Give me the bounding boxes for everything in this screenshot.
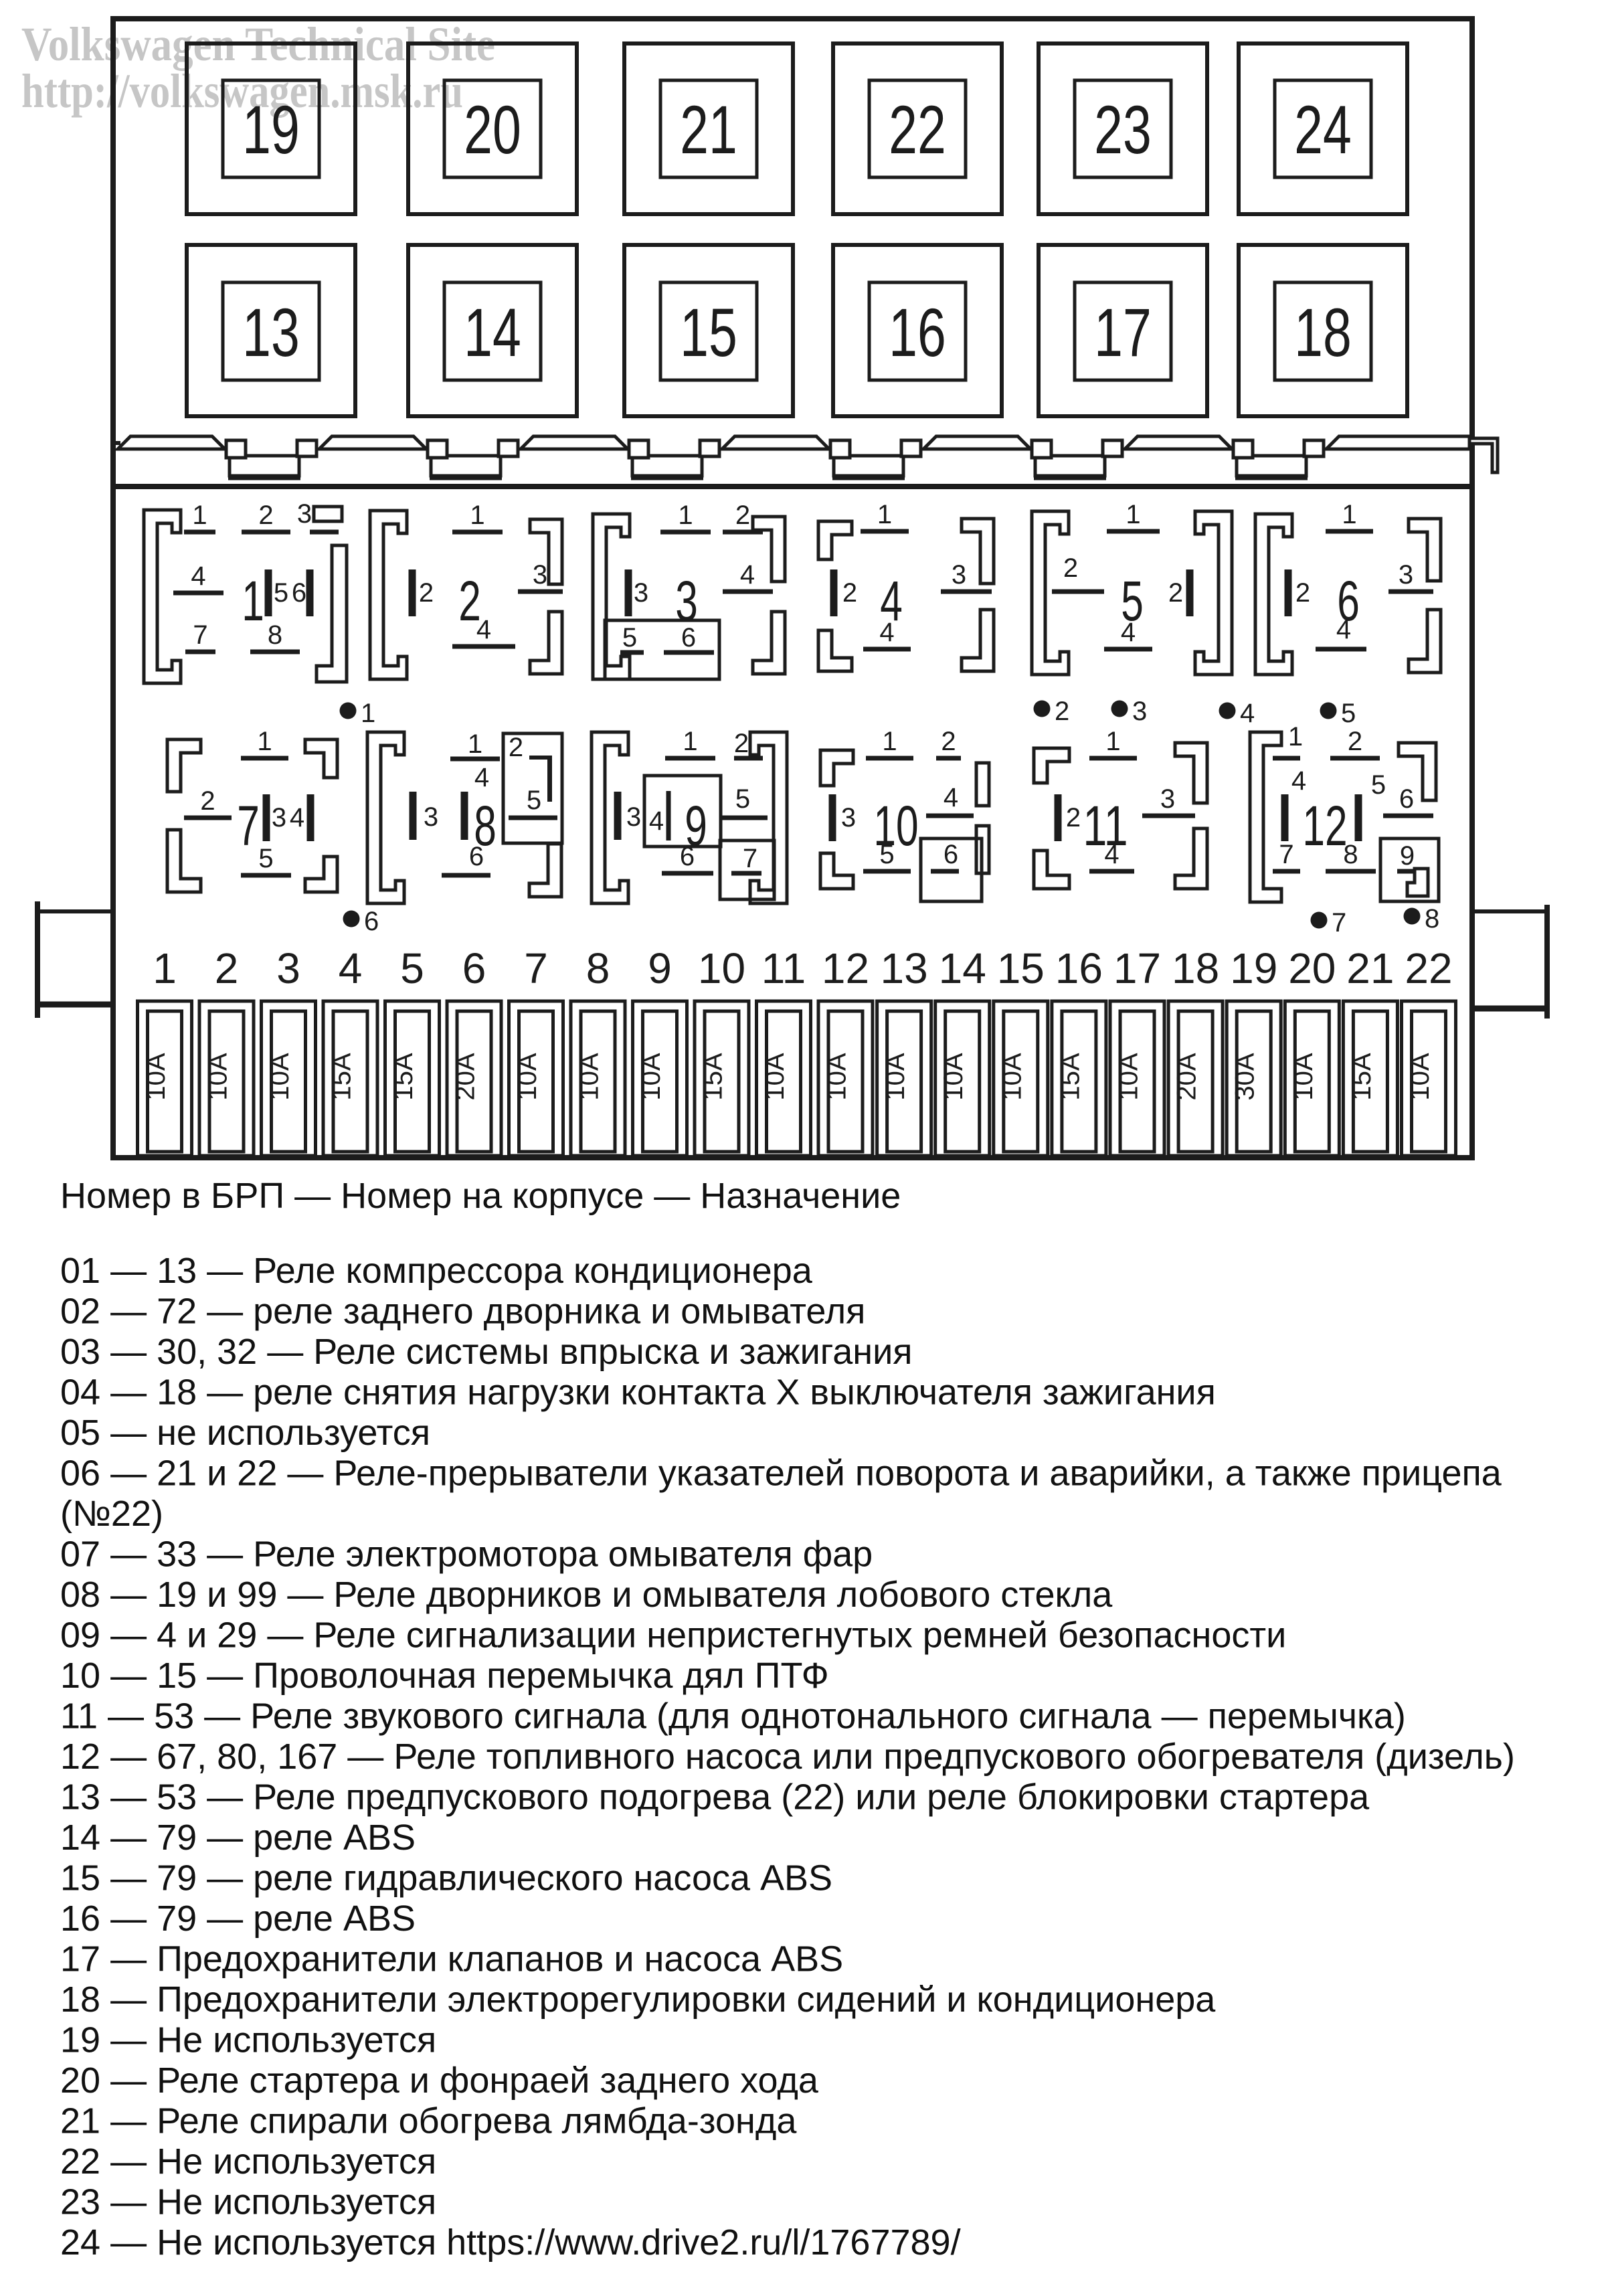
svg-text:22 — Не используется: 22 — Не используется: [60, 2141, 436, 2182]
svg-text:17 — Предохранители клапанов и: 17 — Предохранители клапанов и насоса AB…: [60, 1939, 843, 1979]
svg-text:10A: 10A: [1289, 1053, 1318, 1100]
svg-text:10A: 10A: [1405, 1053, 1435, 1100]
svg-text:3: 3: [424, 802, 438, 832]
svg-text:22: 22: [1405, 944, 1452, 992]
svg-text:05 — не используется: 05 — не используется: [60, 1413, 430, 1453]
svg-text:20: 20: [1288, 944, 1336, 992]
svg-text:4: 4: [1121, 618, 1136, 647]
svg-text:4: 4: [1291, 766, 1306, 796]
svg-text:6: 6: [364, 907, 379, 936]
svg-text:10A: 10A: [939, 1053, 968, 1100]
svg-text:6: 6: [681, 623, 696, 652]
svg-text:4: 4: [944, 783, 958, 812]
svg-text:1: 1: [1126, 500, 1140, 529]
svg-text:2: 2: [419, 578, 434, 608]
svg-text:1: 1: [683, 727, 697, 756]
svg-text:2: 2: [1063, 553, 1078, 583]
svg-text:2: 2: [1055, 697, 1069, 726]
svg-text:24 — Не используется https://w: 24 — Не используется https://www.drive2.…: [60, 2222, 961, 2263]
svg-text:(№22): (№22): [60, 1494, 163, 1534]
svg-text:Номер в БРП — Номер на корпусе: Номер в БРП — Номер на корпусе — Назначе…: [60, 1176, 901, 1216]
svg-text:3: 3: [533, 560, 547, 590]
svg-text:1: 1: [153, 944, 177, 992]
svg-text:3: 3: [1399, 560, 1413, 590]
svg-text:3: 3: [626, 802, 641, 832]
svg-text:18: 18: [1294, 294, 1352, 371]
svg-text:5: 5: [622, 623, 637, 652]
svg-text:10A: 10A: [1114, 1053, 1144, 1100]
svg-text:12: 12: [822, 944, 869, 992]
svg-text:20A: 20A: [1172, 1053, 1202, 1100]
svg-text:15A: 15A: [1055, 1053, 1085, 1100]
svg-text:2: 2: [1066, 803, 1081, 832]
svg-text:5: 5: [879, 840, 894, 869]
svg-text:10A: 10A: [513, 1053, 542, 1100]
svg-text:3: 3: [634, 578, 648, 608]
svg-text:1: 1: [242, 569, 264, 632]
svg-text:20 — Реле стартера и фонраей з: 20 — Реле стартера и фонраей заднего ход…: [60, 2060, 819, 2101]
svg-text:2: 2: [735, 501, 750, 530]
svg-text:6: 6: [1399, 784, 1414, 814]
svg-text:19: 19: [1230, 944, 1277, 992]
svg-text:3: 3: [1132, 697, 1147, 726]
svg-text:3: 3: [841, 803, 856, 832]
svg-text:23: 23: [1094, 92, 1152, 168]
svg-text:2: 2: [734, 729, 749, 758]
svg-text:10A: 10A: [203, 1053, 233, 1100]
svg-text:2: 2: [215, 944, 239, 992]
svg-text:3: 3: [272, 803, 286, 832]
svg-text:14: 14: [939, 944, 986, 992]
svg-text:6: 6: [292, 578, 306, 608]
svg-text:1: 1: [678, 501, 693, 530]
svg-text:5: 5: [1341, 699, 1356, 728]
svg-text:5: 5: [258, 844, 273, 873]
svg-text:10A: 10A: [636, 1053, 666, 1100]
svg-text:7: 7: [524, 944, 548, 992]
svg-text:7: 7: [743, 844, 757, 873]
svg-text:8: 8: [268, 620, 282, 650]
svg-text:22: 22: [889, 92, 946, 168]
svg-text:19: 19: [242, 92, 300, 168]
svg-text:1: 1: [1105, 727, 1120, 756]
svg-text:7: 7: [237, 794, 260, 857]
svg-text:17: 17: [1113, 944, 1161, 992]
svg-text:2: 2: [200, 786, 215, 816]
svg-text:1: 1: [257, 727, 272, 756]
svg-text:21: 21: [1346, 944, 1394, 992]
svg-text:15: 15: [997, 944, 1045, 992]
svg-text:23 — Не используется: 23 — Не используется: [60, 2182, 436, 2222]
svg-text:16 — 79 — реле ABS: 16 — 79 — реле ABS: [60, 1898, 416, 1939]
svg-text:1: 1: [468, 729, 482, 759]
svg-text:12: 12: [1302, 794, 1347, 857]
svg-text:20A: 20A: [451, 1053, 480, 1100]
svg-text:19 — Не используется: 19 — Не используется: [60, 2020, 436, 2060]
svg-text:7: 7: [1332, 908, 1346, 938]
svg-text:5: 5: [274, 578, 288, 608]
svg-text:10A: 10A: [997, 1053, 1026, 1100]
svg-text:9: 9: [648, 944, 672, 992]
svg-text:1: 1: [192, 501, 207, 530]
svg-text:6: 6: [469, 842, 484, 871]
svg-text:15: 15: [680, 294, 737, 371]
svg-text:15A: 15A: [327, 1053, 357, 1100]
svg-text:4: 4: [740, 560, 755, 590]
svg-text:13: 13: [242, 294, 300, 371]
svg-text:10: 10: [698, 944, 745, 992]
svg-text:2: 2: [509, 733, 523, 762]
svg-text:20: 20: [464, 92, 521, 168]
svg-text:4: 4: [1240, 699, 1255, 728]
svg-text:13: 13: [881, 944, 928, 992]
svg-text:6: 6: [944, 840, 958, 869]
svg-text:16: 16: [1055, 944, 1103, 992]
svg-text:2: 2: [1168, 578, 1183, 608]
svg-text:1: 1: [361, 699, 375, 728]
svg-text:4: 4: [649, 806, 664, 836]
svg-text:1: 1: [1288, 722, 1303, 752]
svg-text:16: 16: [889, 294, 946, 371]
svg-text:01 — 13 — Реле компрессора кон: 01 — 13 — Реле компрессора кондиционера: [60, 1251, 813, 1291]
svg-text:9: 9: [1400, 841, 1415, 871]
svg-text:1: 1: [470, 501, 484, 530]
svg-text:4: 4: [191, 561, 205, 591]
svg-text:4: 4: [476, 615, 491, 644]
svg-text:4: 4: [290, 803, 304, 832]
svg-text:11: 11: [761, 944, 806, 992]
svg-text:02 — 72 — реле заднего дворник: 02 — 72 — реле заднего дворника и омыват…: [60, 1292, 865, 1332]
svg-text:3: 3: [952, 560, 966, 590]
svg-text:2: 2: [941, 727, 956, 756]
svg-text:18 — Предохранители электрорег: 18 — Предохранители электрорегулировки с…: [60, 1979, 1216, 2020]
svg-text:3: 3: [297, 499, 312, 529]
svg-text:06 — 21 и 22 — Реле-прерывател: 06 — 21 и 22 — Реле-прерыватели указател…: [60, 1453, 1502, 1494]
svg-text:15A: 15A: [1347, 1053, 1376, 1100]
svg-text:10A: 10A: [881, 1053, 910, 1100]
svg-text:7: 7: [193, 620, 207, 650]
svg-text:15A: 15A: [699, 1053, 728, 1100]
svg-text:30A: 30A: [1231, 1053, 1260, 1100]
svg-text:7: 7: [1279, 840, 1293, 869]
svg-text:8: 8: [1425, 904, 1439, 934]
svg-text:17: 17: [1094, 294, 1152, 371]
svg-text:08 — 19 и 99 — Реле дворников: 08 — 19 и 99 — Реле дворников и омывател…: [60, 1575, 1113, 1615]
svg-text:10A: 10A: [760, 1053, 790, 1100]
svg-text:1: 1: [877, 500, 892, 529]
svg-text:15 — 79 — реле гидравлического: 15 — 79 — реле гидравлического насоса AB…: [60, 1858, 832, 1898]
svg-text:03 — 30, 32 — Реле системы впр: 03 — 30, 32 — Реле системы впрыска и заж…: [60, 1332, 913, 1372]
svg-text:3: 3: [276, 944, 300, 992]
svg-text:15A: 15A: [389, 1053, 418, 1100]
svg-text:6: 6: [680, 842, 695, 871]
svg-text:2: 2: [1295, 578, 1310, 608]
svg-text:10A: 10A: [265, 1053, 294, 1100]
svg-text:2: 2: [1348, 727, 1362, 756]
svg-text:13 — 53 — Реле предпускового п: 13 — 53 — Реле предпускового подогрева (…: [60, 1777, 1370, 1818]
svg-text:14: 14: [464, 294, 521, 371]
svg-text:21: 21: [680, 92, 737, 168]
svg-text:21 — Реле спирали обогрева лям: 21 — Реле спирали обогрева лямбда-зонда: [60, 2101, 797, 2141]
svg-text:6: 6: [462, 944, 486, 992]
svg-text:2: 2: [258, 501, 273, 530]
svg-text:4: 4: [339, 944, 363, 992]
svg-text:11 — 53 — Реле звукового сигна: 11 — 53 — Реле звукового сигнала (для од…: [60, 1696, 1406, 1737]
svg-text:1: 1: [1342, 500, 1356, 529]
svg-text:09 — 4 и 29 — Реле сигнализаци: 09 — 4 и 29 — Реле сигнализации непристе…: [60, 1615, 1286, 1656]
svg-text:18: 18: [1172, 944, 1219, 992]
svg-text:10A: 10A: [575, 1053, 604, 1100]
svg-text:24: 24: [1294, 92, 1352, 168]
svg-text:8: 8: [1343, 840, 1358, 869]
svg-text:5: 5: [735, 784, 750, 814]
svg-text:5: 5: [400, 944, 424, 992]
svg-text:5: 5: [1371, 770, 1386, 800]
svg-text:04 — 18 — реле снятия нагрузки: 04 — 18 — реле снятия нагрузки контакта …: [60, 1373, 1216, 1413]
svg-text:14 — 79 — реле ABS: 14 — 79 — реле ABS: [60, 1818, 416, 1858]
svg-text:4: 4: [474, 763, 489, 792]
svg-text:2: 2: [842, 578, 857, 608]
svg-text:5: 5: [527, 786, 541, 815]
svg-text:10A: 10A: [822, 1053, 852, 1100]
svg-text:12 — 67, 80, 167 — Реле топлив: 12 — 67, 80, 167 — Реле топливного насос…: [60, 1737, 1515, 1777]
svg-text:4: 4: [1336, 615, 1351, 644]
svg-text:3: 3: [1160, 784, 1175, 814]
svg-text:4: 4: [1104, 840, 1119, 869]
svg-text:1: 1: [882, 727, 897, 756]
svg-text:10 — 15 — Проволочная перемычк: 10 — 15 — Проволочная перемычка дял ПТФ: [60, 1656, 829, 1696]
svg-text:07 — 33 — Реле электромотора о: 07 — 33 — Реле электромотора омывателя ф…: [60, 1534, 873, 1575]
svg-text:4: 4: [879, 618, 894, 647]
svg-text:8: 8: [586, 944, 610, 992]
svg-text:10A: 10A: [141, 1053, 171, 1100]
